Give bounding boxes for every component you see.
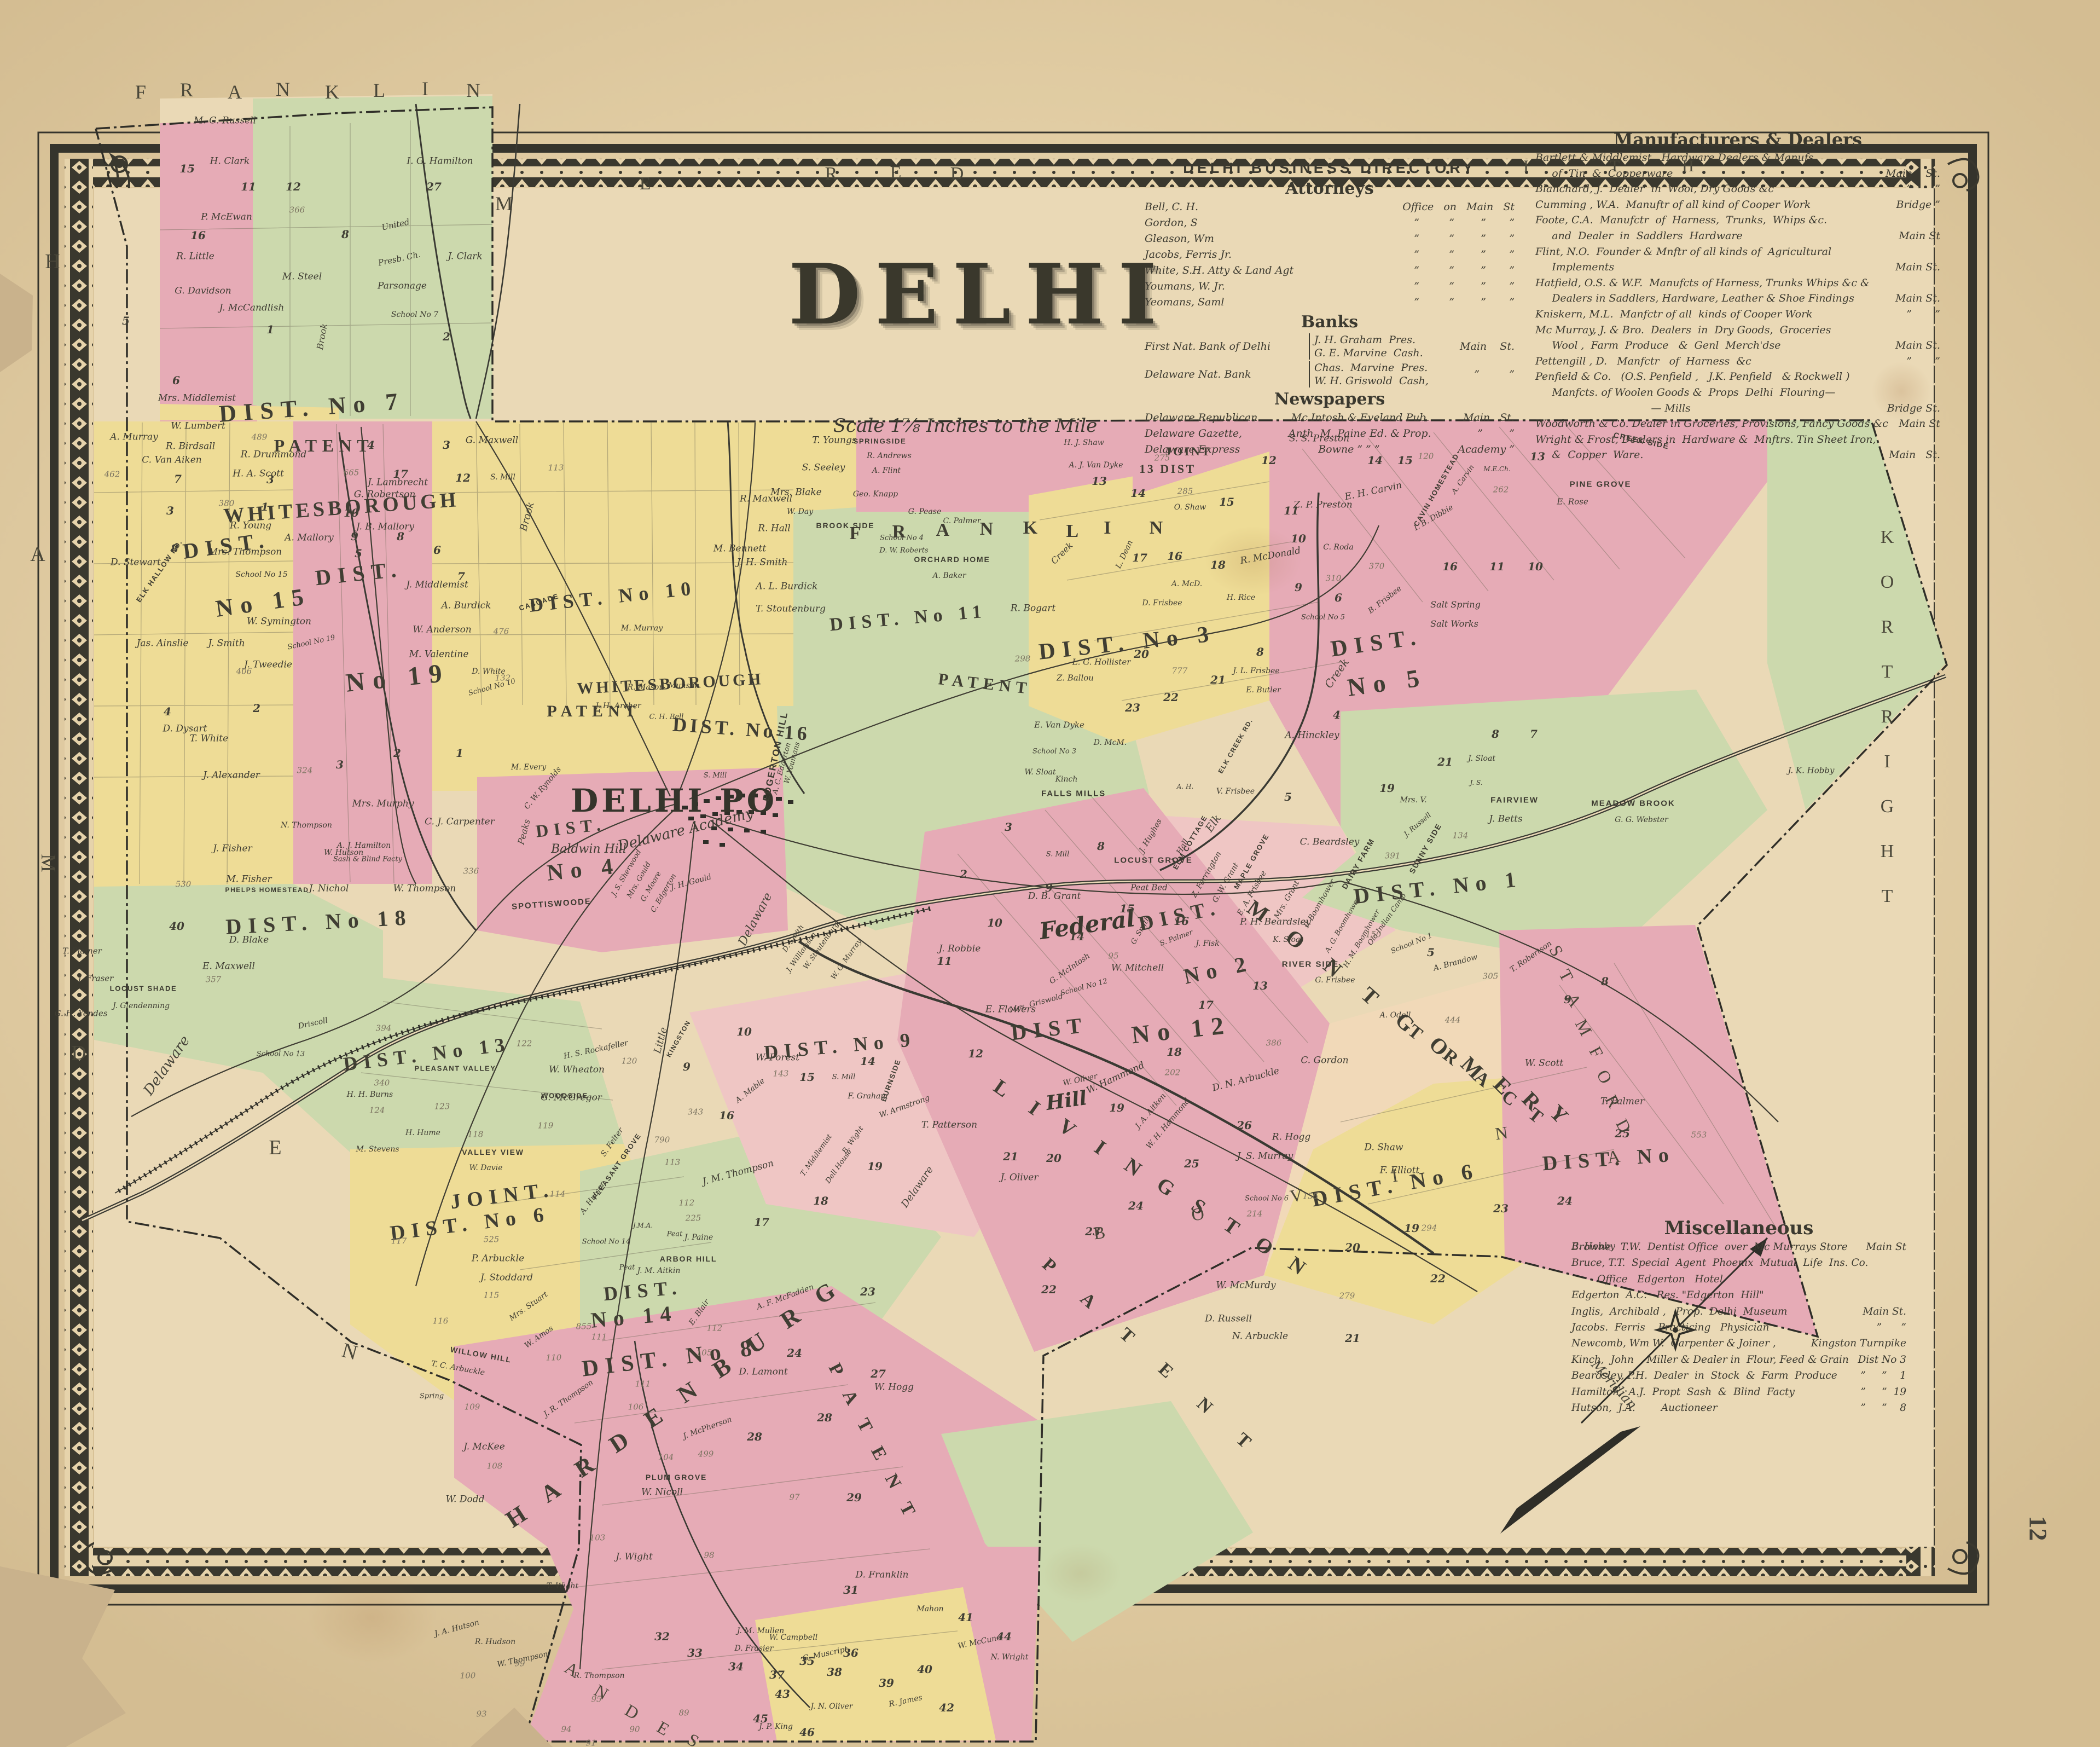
map-label: 285 (1177, 488, 1193, 496)
map-label: 33 (687, 1647, 703, 1658)
map-label: G. Frisbee (1315, 976, 1355, 984)
map-label: 294 (1422, 1224, 1437, 1233)
map-label: 8 (1492, 728, 1499, 739)
map-label: 225 (686, 1214, 701, 1223)
map-label: 11 (1284, 505, 1299, 516)
map-label: 29 (846, 1492, 862, 1503)
attorneys-rows: Bell, C. H.Office on Main StGordon, S” ”… (1145, 199, 1515, 310)
directory-row: Wright & Frost, Dealers in Hardware & Mn… (1535, 432, 1940, 448)
map-label: R. Hogg (1272, 1133, 1310, 1142)
map-label: 23 (1085, 1226, 1100, 1237)
map-label: Z. P. Preston (1293, 501, 1353, 510)
map-label: J. Clark (448, 252, 482, 262)
directory-row: Office Edgerton Hotel (1571, 1271, 1906, 1287)
map-label: E. Butler (1246, 686, 1281, 694)
map-label: 111 (591, 1333, 607, 1341)
map-label: 777 (1172, 667, 1188, 675)
map-label: 380 (219, 500, 235, 508)
map-label: Salt Spring (1430, 600, 1481, 609)
map-label: 41 (958, 1612, 973, 1623)
map-label: 13 (1252, 980, 1268, 991)
map-label: 13 (1092, 476, 1107, 487)
map-label: L (373, 80, 386, 100)
map-label: 8 (171, 543, 178, 554)
map-label: O (1881, 573, 1895, 592)
map-label: 132 (495, 674, 511, 682)
map-label: 10 (736, 1026, 752, 1037)
directory-row: Gordon, S” ” ” ” (1145, 215, 1515, 231)
map-label: Parsonage (378, 282, 427, 291)
map-label: J. Robbie (939, 945, 981, 954)
map-label: 15 (1119, 903, 1135, 914)
map-label: 6 (172, 375, 180, 386)
map-label: 22 (1163, 692, 1179, 703)
map-label: 111 (635, 1380, 651, 1389)
map-label: Mahon (916, 1605, 943, 1613)
map-label: W. Symington (247, 617, 311, 627)
map-label: W. Lumbert (171, 422, 225, 431)
map-label: H (45, 251, 61, 272)
map-label: T. Wight (547, 1582, 578, 1590)
map-label: J. S. Murray (1237, 1152, 1293, 1161)
map-label: H. A. Scott (233, 470, 284, 479)
map-label: W. Campbell (769, 1634, 817, 1641)
map-label: M. G. Russell (194, 117, 256, 126)
map-label: 17 (754, 1217, 769, 1228)
map-label: D. Dysart (163, 725, 207, 734)
map-label: C. Palmer (943, 517, 981, 525)
map-label: 343 (688, 1108, 704, 1117)
map-label: C. J. Carpenter (425, 818, 495, 827)
map-label: 11 (1489, 561, 1505, 572)
map-label: 25 (1615, 1128, 1630, 1139)
directory-row: Delaware RepublicanMc Intosh & Eveland P… (1145, 410, 1515, 426)
map-label: T. Plainer (62, 947, 102, 956)
map-label: 489 (252, 433, 268, 442)
map-label: D. Stewart (111, 558, 161, 568)
map-label: L. G. Hollister (1072, 658, 1131, 667)
map-label: K (1881, 528, 1895, 547)
map-label: 366 (289, 206, 305, 215)
map-label: 99 (514, 1660, 525, 1668)
map-label: E (269, 1137, 282, 1158)
map-label: W. Thompson (393, 884, 456, 894)
map-label: M. Murray (621, 624, 663, 632)
directory-row: Manfcts. of Woolen Goods & Props Delhi F… (1535, 385, 1940, 401)
map-label: 34 (728, 1661, 744, 1672)
map-label: G (1881, 797, 1895, 816)
map-label: 10 (987, 917, 1002, 928)
map-label: ORCHARD HOME (914, 556, 990, 563)
map-label: 3 (1005, 822, 1012, 832)
map-label: 115 (484, 1292, 500, 1300)
map-label: School No 14 (582, 1239, 630, 1246)
map-label: Mrs. Thompson (208, 548, 282, 557)
directory-row: Dealers in Saddlers, Hardware, Leather &… (1535, 291, 1940, 306)
map-label: 103 (590, 1534, 606, 1542)
map-label: D. Franklin (856, 1571, 909, 1580)
map-label: E. Van Dyke (1034, 721, 1084, 730)
map-label: 14 (1367, 455, 1383, 466)
map-label: 25 (1184, 1158, 1199, 1169)
map-label: M (38, 854, 59, 873)
map-label: 39 (879, 1677, 894, 1688)
map-label: 370 (1369, 563, 1385, 571)
map-label: 8 (1097, 841, 1105, 852)
map-label: E (640, 175, 652, 193)
map-label: R. Young (230, 522, 271, 531)
map-label: 28 (817, 1412, 832, 1423)
map-label: 530 (176, 881, 192, 889)
map-label: 22 (1430, 1273, 1446, 1284)
map-label: 18 (1210, 559, 1226, 570)
map-label: G. H. Yendes (55, 1010, 108, 1018)
map-label: J. Nichol (309, 884, 349, 894)
map-label: 32 (654, 1631, 670, 1642)
map-label: 21 (1003, 1151, 1018, 1162)
directory-row: Jacobs, Ferris Jr.” ” ” ” (1145, 247, 1515, 263)
map-label: J. Betts (1489, 815, 1522, 824)
map-label: 2 (393, 748, 401, 759)
map-label: 36 (843, 1647, 858, 1658)
map-label: School No 4 (880, 535, 924, 542)
map-label: 406 (236, 668, 252, 676)
map-label: 4 (164, 706, 171, 717)
bank-row: Delaware Nat. BankChas. Marvine Pres.W. … (1145, 361, 1515, 387)
map-label: N (1150, 519, 1169, 537)
map-label: G. Maxwell (466, 436, 518, 446)
map-label: 117 (391, 1237, 407, 1246)
map-label: R. Hudson (475, 1638, 515, 1646)
map-label: 122 (517, 1040, 532, 1048)
newspapers-heading: Newspapers (1145, 390, 1515, 409)
map-label: 499 (698, 1450, 714, 1459)
directory-row: of Tin & CopperwareMain St. (1535, 166, 1940, 182)
directory-row: Edgerton A.C. Res. "Edgerton Hill" (1571, 1287, 1906, 1303)
map-label: 14 (1069, 931, 1084, 942)
directory-row: Hatfield, O.S. & W.F. Manufcts of Harnes… (1535, 275, 1940, 291)
map-label: 4 (1333, 709, 1341, 720)
map-label: 14 (1130, 488, 1146, 499)
directory-row: Yeomans, Saml” ” ” ” (1145, 294, 1515, 310)
map-label: 855 (576, 1323, 592, 1331)
map-label: 12 (968, 1048, 983, 1059)
map-label: A. Burdick (442, 601, 491, 611)
map-label: J. H. Archer (595, 702, 641, 710)
map-label: 120 (622, 1057, 637, 1066)
map-label: N. Arbuckle (1232, 1332, 1288, 1341)
map-label: 104 (658, 1454, 674, 1462)
directory-row: Blanchard, J. Dealer in Wool, Dry Goods … (1535, 181, 1940, 197)
directory-row: ImplementsMain St. (1535, 259, 1940, 275)
map-label: 336 (463, 867, 479, 876)
map-label: 120 (1418, 453, 1434, 461)
map-label: W. Dodd (446, 1495, 485, 1505)
map-label: W. Davie (469, 1164, 502, 1172)
map-label: H (1881, 842, 1895, 861)
map-label: RIVER SIDE (1282, 961, 1339, 969)
map-label: Salt Works (1430, 620, 1478, 628)
map-label: R. Little (176, 252, 214, 262)
map-label: 19 (867, 1161, 883, 1172)
map-label: 462 (105, 471, 120, 479)
map-label: J. Fisk (1196, 940, 1219, 947)
map-label: 18 (813, 1195, 828, 1206)
map-label: D. Shaw (1364, 1143, 1403, 1153)
map-label: 114 (550, 1190, 566, 1199)
map-label: 8 (341, 229, 349, 240)
map-label: T. Youngs (812, 436, 856, 446)
map-label: W. Hogg (874, 1383, 914, 1392)
map-label: J. L. Frisbee (1233, 667, 1279, 675)
map-label: 8 (1601, 976, 1609, 987)
directory-row: Woodworth & Co. Dealer in Groceries, Pro… (1535, 416, 1940, 432)
map-label: PHELPS HOMESTEAD (225, 887, 309, 893)
map-label: Mrs. Middlemist (158, 394, 236, 403)
map-label: G. Pease (908, 508, 941, 516)
map-label: H. H. Burns (347, 1091, 393, 1098)
map-label: A (30, 544, 46, 565)
map-label: 18 (1167, 1046, 1182, 1057)
map-label: 7 (457, 571, 465, 582)
map-label: H. Clark (210, 157, 250, 166)
map-label: 16 (1174, 916, 1189, 927)
directory-row: Inglis, Archibald , Prop. Delhi MuseumMa… (1571, 1304, 1906, 1320)
map-label: 5 (1427, 947, 1435, 958)
map-label: M. Bennett (713, 545, 766, 554)
map-label: W. Scott (1525, 1059, 1563, 1068)
map-label: 386 (1266, 1039, 1282, 1048)
map-label: 22 (1041, 1284, 1057, 1295)
map-label: 12 (286, 181, 301, 192)
map-label: J. S. (1470, 779, 1482, 786)
map-label: 44 (996, 1631, 1012, 1642)
map-label: 20 (1345, 1242, 1360, 1253)
map-label: 1 (266, 324, 274, 335)
map-label: 113 (548, 464, 564, 472)
map-label: M. Valentine (409, 650, 469, 660)
directory-row: Cumming , W.A. Manuftr of all kind of Co… (1535, 197, 1940, 213)
map-label: A. Mallory (285, 534, 333, 543)
map-label: 13 DIST (1139, 463, 1196, 475)
map-label: 298 (1015, 655, 1031, 663)
map-label: 9 (683, 1061, 691, 1072)
map-label: I (1884, 753, 1891, 771)
map-label: A. McD. (1171, 580, 1202, 588)
map-label: ARBOR HILL (660, 1255, 717, 1263)
map-label: I (1523, 158, 1530, 175)
map-label: D. B. Grant (1028, 892, 1081, 901)
map-label: 16 (1167, 551, 1182, 562)
map-label: W. Nicoll (641, 1488, 683, 1497)
map-label: 109 (465, 1403, 480, 1412)
map-label: 262 (1493, 486, 1509, 494)
map-label: 16 (190, 230, 206, 241)
map-label: D. W. Roberts (879, 547, 928, 554)
manufacturers-title: Manufacturers & Dealers (1535, 129, 1940, 150)
map-label: 279 (1339, 1292, 1355, 1300)
map-label: A. L. Burdick (756, 582, 818, 592)
map-label: 394 (376, 1025, 392, 1033)
map-label: School No 15 (235, 571, 287, 579)
map-label: R. Drummond (241, 450, 307, 460)
bank-row: First Nat. Bank of DelhiJ. H. Graham Pre… (1145, 333, 1515, 360)
map-label: W. Sloat (1024, 768, 1055, 776)
map-label: 97 (789, 1494, 799, 1502)
map-label: Peat (667, 1231, 683, 1238)
directory-row: Newcomb, Wm W. Carpenter & Joiner ,Kings… (1571, 1335, 1906, 1351)
map-label: 100 (460, 1672, 476, 1680)
map-label: 113 (665, 1159, 681, 1167)
map-title: DELHI (788, 245, 1106, 343)
map-label: 10 (1291, 533, 1306, 544)
map-label: 24 (1128, 1200, 1144, 1211)
map-label: 444 (1445, 1016, 1461, 1025)
map-label: 23 (1125, 702, 1140, 713)
map-label: C. H. Bell (649, 714, 684, 721)
map-label: J. Sloat (1468, 755, 1495, 762)
map-label: J. Munson (661, 682, 699, 690)
map-label: J. Fisher (213, 844, 252, 854)
map-label: 19 (1109, 1102, 1124, 1113)
map-label: 553 (1691, 1131, 1707, 1139)
map-label: 24 (1557, 1195, 1573, 1206)
map-label: 23 (860, 1286, 875, 1297)
map-label: 12 (1261, 455, 1277, 466)
map-label: 150 (1366, 931, 1382, 939)
map-label: 10 (1528, 561, 1543, 572)
page-number: 12 (2024, 1516, 2053, 1541)
map-label: I (422, 79, 430, 99)
map-label: A. Odell (1380, 1011, 1411, 1019)
map-label: R (1881, 708, 1895, 726)
map-label: MEADOW BROOK (1591, 800, 1675, 808)
map-label: 8 (397, 531, 404, 542)
map-label: M. Fisher (226, 875, 271, 884)
map-label: A (228, 82, 243, 102)
map-label: School No 6 (1245, 1195, 1289, 1202)
map-label: 9 (1564, 994, 1571, 1005)
map-label: 37 (769, 1669, 785, 1680)
map-label: 3 (266, 474, 274, 485)
map-label: 5 (122, 315, 130, 326)
map-label: L (1066, 522, 1084, 541)
map-label: 17 (393, 468, 408, 479)
map-label: T (1882, 887, 1894, 906)
map-label: 3 (166, 505, 174, 516)
map-label: D (950, 165, 965, 183)
map-label: R. Mason (628, 684, 664, 691)
map-label: R. Birdsall (166, 442, 215, 452)
directory-title: DELHI BUSINESS DIRECTORY (1145, 160, 1515, 177)
map-label: 2 (443, 331, 450, 342)
map-label: A. J. Van Dyke (1069, 461, 1123, 469)
map-label: 340 (374, 1079, 390, 1087)
map-label: 4 (367, 439, 375, 450)
map-label: N (980, 520, 999, 539)
map-label: 15 (1397, 455, 1413, 466)
map-label: S. Mill (832, 1074, 856, 1081)
map-label: R (1881, 618, 1895, 637)
map-label: Spring (420, 1393, 444, 1400)
map-label: FAIRVIEW (1490, 796, 1539, 805)
map-label: G. Robertson (354, 490, 416, 500)
miscellaneous-title: Miscellaneous (1571, 1217, 1906, 1239)
map-label: M (495, 194, 514, 213)
map-label: 45 (753, 1713, 768, 1724)
directory-row: Flint, N.O. Founder & Mnftr of all kinds… (1535, 244, 1940, 260)
map-label: S. S. Preston (1289, 435, 1349, 444)
map-label: 21 (1210, 674, 1226, 685)
map-label: K (1023, 519, 1043, 537)
map-label: J. Fraser (78, 975, 114, 983)
directory-row: Foote, C.A. Manufctr of Harness, Trunks,… (1535, 212, 1940, 228)
map-label: 7 (174, 473, 182, 484)
map-label: J. Smith (208, 639, 245, 649)
map-label: M. Stevens (356, 1146, 399, 1153)
map-label: Jas. Ainslie (137, 639, 189, 649)
map-label: 5 (355, 548, 362, 559)
map-label: D. McM. (1094, 739, 1127, 747)
attorneys-heading: Attorneys (1145, 179, 1515, 198)
directory-row: Wool , Farm Produce & Genl Merch'dseMain… (1535, 338, 1940, 354)
map-label: 17 (1132, 552, 1147, 563)
map-label: 31 (843, 1584, 858, 1595)
map-label: 105 (697, 1349, 712, 1357)
map-label: JOINT (1165, 446, 1212, 458)
map-label: 2 (253, 703, 260, 714)
map-label: T. White (190, 734, 228, 744)
map-label: 124 (369, 1107, 385, 1115)
map-label: 6 (1335, 592, 1342, 603)
map-label: 108 (487, 1462, 503, 1471)
map-label: A. Hinckley (1285, 731, 1339, 741)
atlas-page: DELHI Scale 1⅞ Inches to the Mile DELHI … (0, 0, 2100, 1747)
map-label: J. N. Oliver (811, 1703, 853, 1710)
map-label: S. Mill (490, 473, 515, 481)
map-label: T. Patterson (921, 1121, 977, 1130)
map-label: 40 (917, 1664, 932, 1675)
map-label: N (276, 79, 291, 99)
map-label: W. Hutson (324, 849, 363, 857)
map-label: J. Alexander (203, 771, 260, 780)
business-directory: DELHI BUSINESS DIRECTORY Attorneys Bell,… (1145, 160, 1515, 458)
map-label: 11 (241, 181, 256, 192)
map-label: 15 (799, 1072, 815, 1083)
map-label: F. Elliott (1380, 1166, 1420, 1176)
map-label: 310 (1326, 575, 1342, 583)
map-label: PINE GROVE (1570, 481, 1632, 489)
map-label: I. G. Hamilton (407, 157, 473, 166)
map-label: S. Seeley (802, 464, 845, 473)
map-label: V. Frisbee (1216, 788, 1255, 795)
map-label: N. Thompson (281, 822, 332, 829)
map-label: H. Rice (1227, 594, 1255, 601)
map-label: 94 (561, 1726, 571, 1734)
map-label: M. Every (511, 763, 546, 771)
map-label: C. Van Aiken (142, 456, 201, 465)
map-label: Mrs. Blake (770, 488, 822, 498)
map-label: LOCUST SHADE (110, 985, 177, 992)
map-label: 16 (1442, 561, 1458, 572)
map-label: W. Day (787, 508, 813, 516)
directory-row: Mc Murray, J. & Bro. Dealers in Dry Good… (1535, 322, 1940, 338)
map-label: 21 (1437, 756, 1453, 767)
map-label: D (71, 1043, 87, 1063)
map-label: Peat (619, 1264, 635, 1271)
map-label: Mrs. Murphy (352, 800, 414, 809)
map-label: 324 (297, 767, 313, 775)
